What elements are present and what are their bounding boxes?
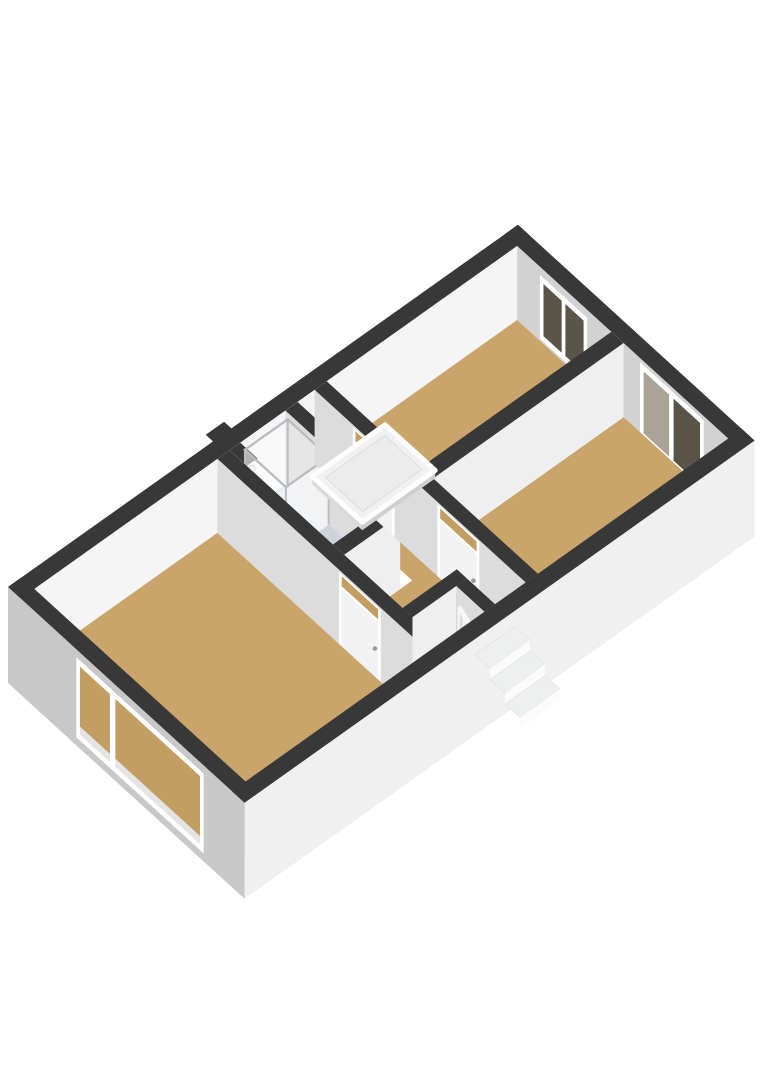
floorplan-3d-render bbox=[0, 0, 768, 1086]
floorplan-page: 3D floor plan - upper floor with three b… bbox=[0, 0, 768, 1086]
door-bedroom-right-handle bbox=[471, 578, 476, 583]
door-bedroom-large-handle bbox=[373, 646, 378, 651]
